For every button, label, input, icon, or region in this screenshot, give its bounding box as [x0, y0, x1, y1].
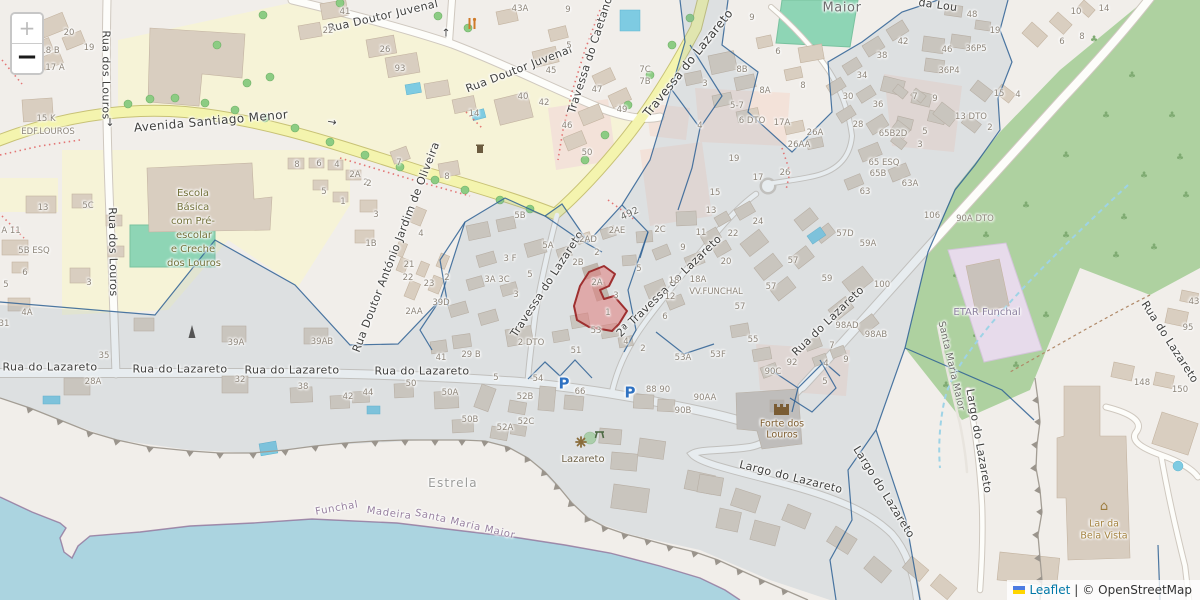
svg-text:♣: ♣ — [1012, 361, 1020, 371]
castle-icon — [774, 404, 789, 415]
svg-text:♣: ♣ — [982, 231, 990, 241]
social-facility-icon: ⌂ — [1100, 499, 1108, 514]
svg-text:♣: ♣ — [1120, 213, 1128, 223]
svg-text:♣: ♣ — [1140, 171, 1148, 181]
osm-link[interactable]: © OpenStreetMap — [1082, 583, 1192, 597]
svg-text:♣: ♣ — [1062, 231, 1070, 241]
historic-flower-icon — [576, 437, 586, 447]
svg-text:♣: ♣ — [1042, 311, 1050, 321]
map-base: ♣♣♣ ♣♣♣ ♣♣♣ ♣♣♣ ♣♣♣ ♣♣♣ ♣♣ — [0, 0, 1200, 600]
attribution-bar: Leaflet|© OpenStreetMap — [1007, 580, 1200, 600]
zoom-out-button[interactable]: − — [12, 44, 42, 73]
svg-text:♣: ♣ — [1102, 111, 1110, 121]
waste-basket-icon — [476, 145, 484, 154]
zoom-in-button[interactable]: + — [12, 14, 42, 44]
svg-text:♣: ♣ — [1090, 35, 1098, 45]
svg-text:♣: ♣ — [1128, 71, 1136, 81]
svg-text:♣: ♣ — [1022, 201, 1030, 211]
leaflet-link[interactable]: Leaflet — [1029, 583, 1070, 597]
svg-text:♣: ♣ — [1112, 251, 1120, 261]
svg-text:♣: ♣ — [1182, 191, 1190, 201]
ukraine-flag-icon — [1013, 586, 1025, 594]
map-canvas[interactable]: ♣♣♣ ♣♣♣ ♣♣♣ ♣♣♣ ♣♣♣ ♣♣♣ ♣♣ — [0, 0, 1200, 600]
zoom-control: + − — [10, 12, 44, 75]
svg-text:♣: ♣ — [1062, 151, 1070, 161]
svg-text:♣: ♣ — [1176, 153, 1184, 163]
svg-text:♣: ♣ — [1150, 243, 1158, 253]
attribution-separator: | — [1074, 583, 1078, 597]
svg-text:♣: ♣ — [1168, 111, 1176, 121]
